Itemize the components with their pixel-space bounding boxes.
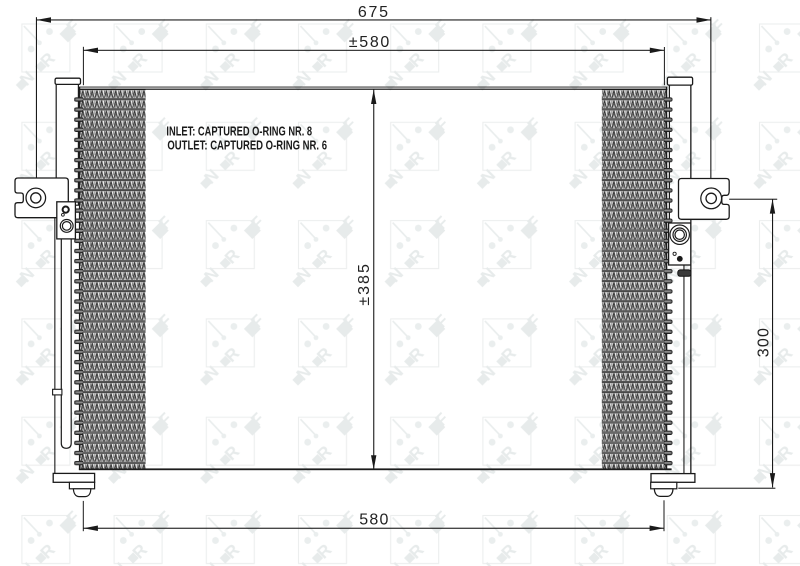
svg-text:300: 300: [755, 327, 772, 357]
svg-text:675: 675: [358, 4, 390, 21]
svg-text:INLET: CAPTURED O-RING NR. 8: INLET: CAPTURED O-RING NR. 8: [166, 125, 312, 139]
svg-text:±385: ±385: [356, 262, 373, 305]
svg-text:580: 580: [359, 512, 389, 529]
svg-text:±580: ±580: [349, 34, 391, 51]
svg-text:OUTLET: CAPTURED O-RING NR. 6: OUTLET: CAPTURED O-RING NR. 6: [167, 139, 327, 153]
